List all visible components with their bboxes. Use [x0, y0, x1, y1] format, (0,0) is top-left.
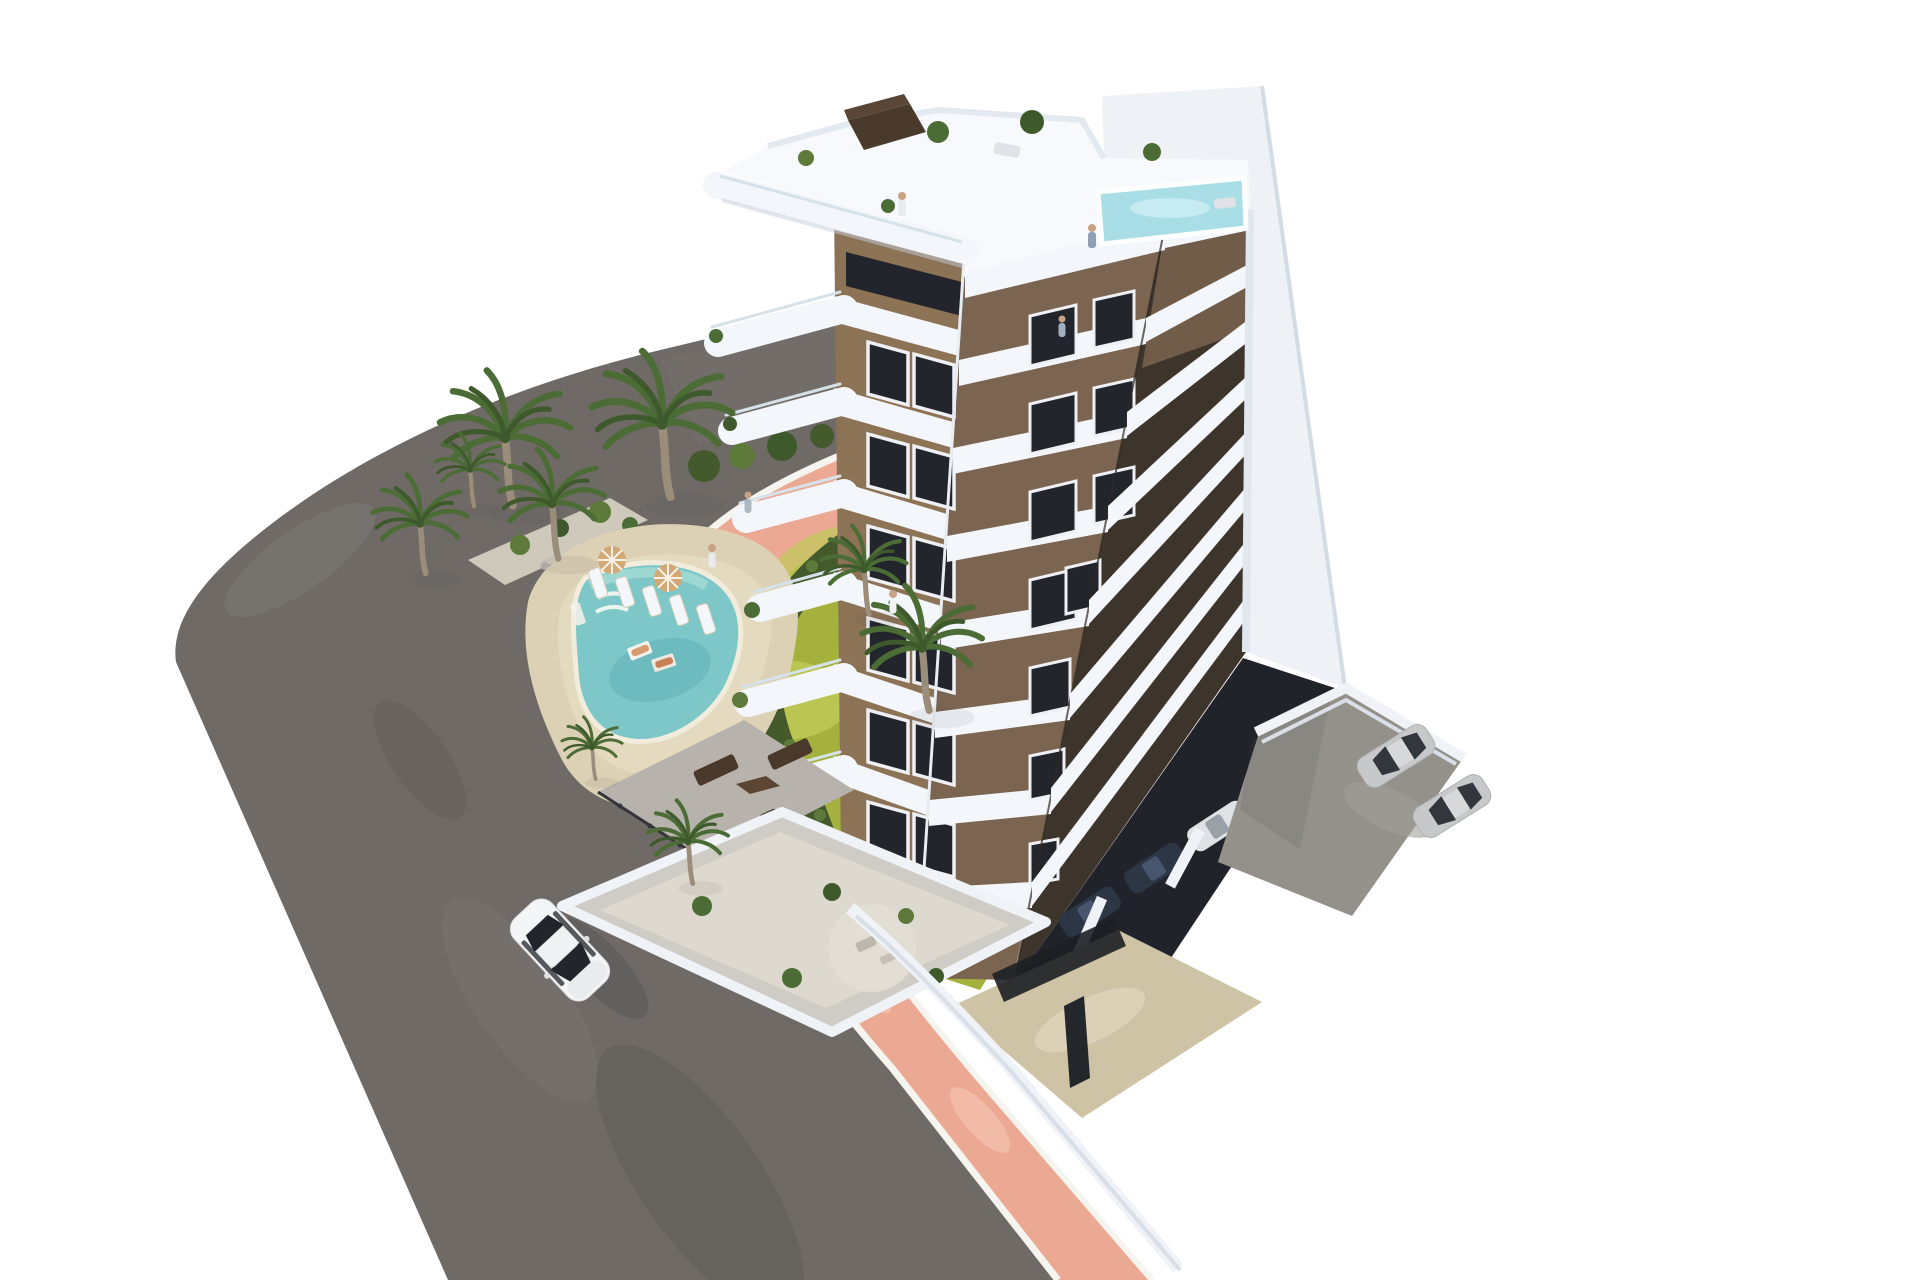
person-on-balcony: [745, 492, 752, 514]
scene: [0, 0, 1920, 1280]
person-standing: [708, 544, 716, 568]
person-on-balcony: [1059, 316, 1066, 338]
person-on-roof: [1088, 224, 1096, 248]
parasol: [654, 564, 682, 592]
render-image: [0, 0, 1920, 1280]
person-standing: [889, 590, 897, 614]
parasol: [598, 546, 626, 574]
person-on-roof: [898, 192, 906, 216]
